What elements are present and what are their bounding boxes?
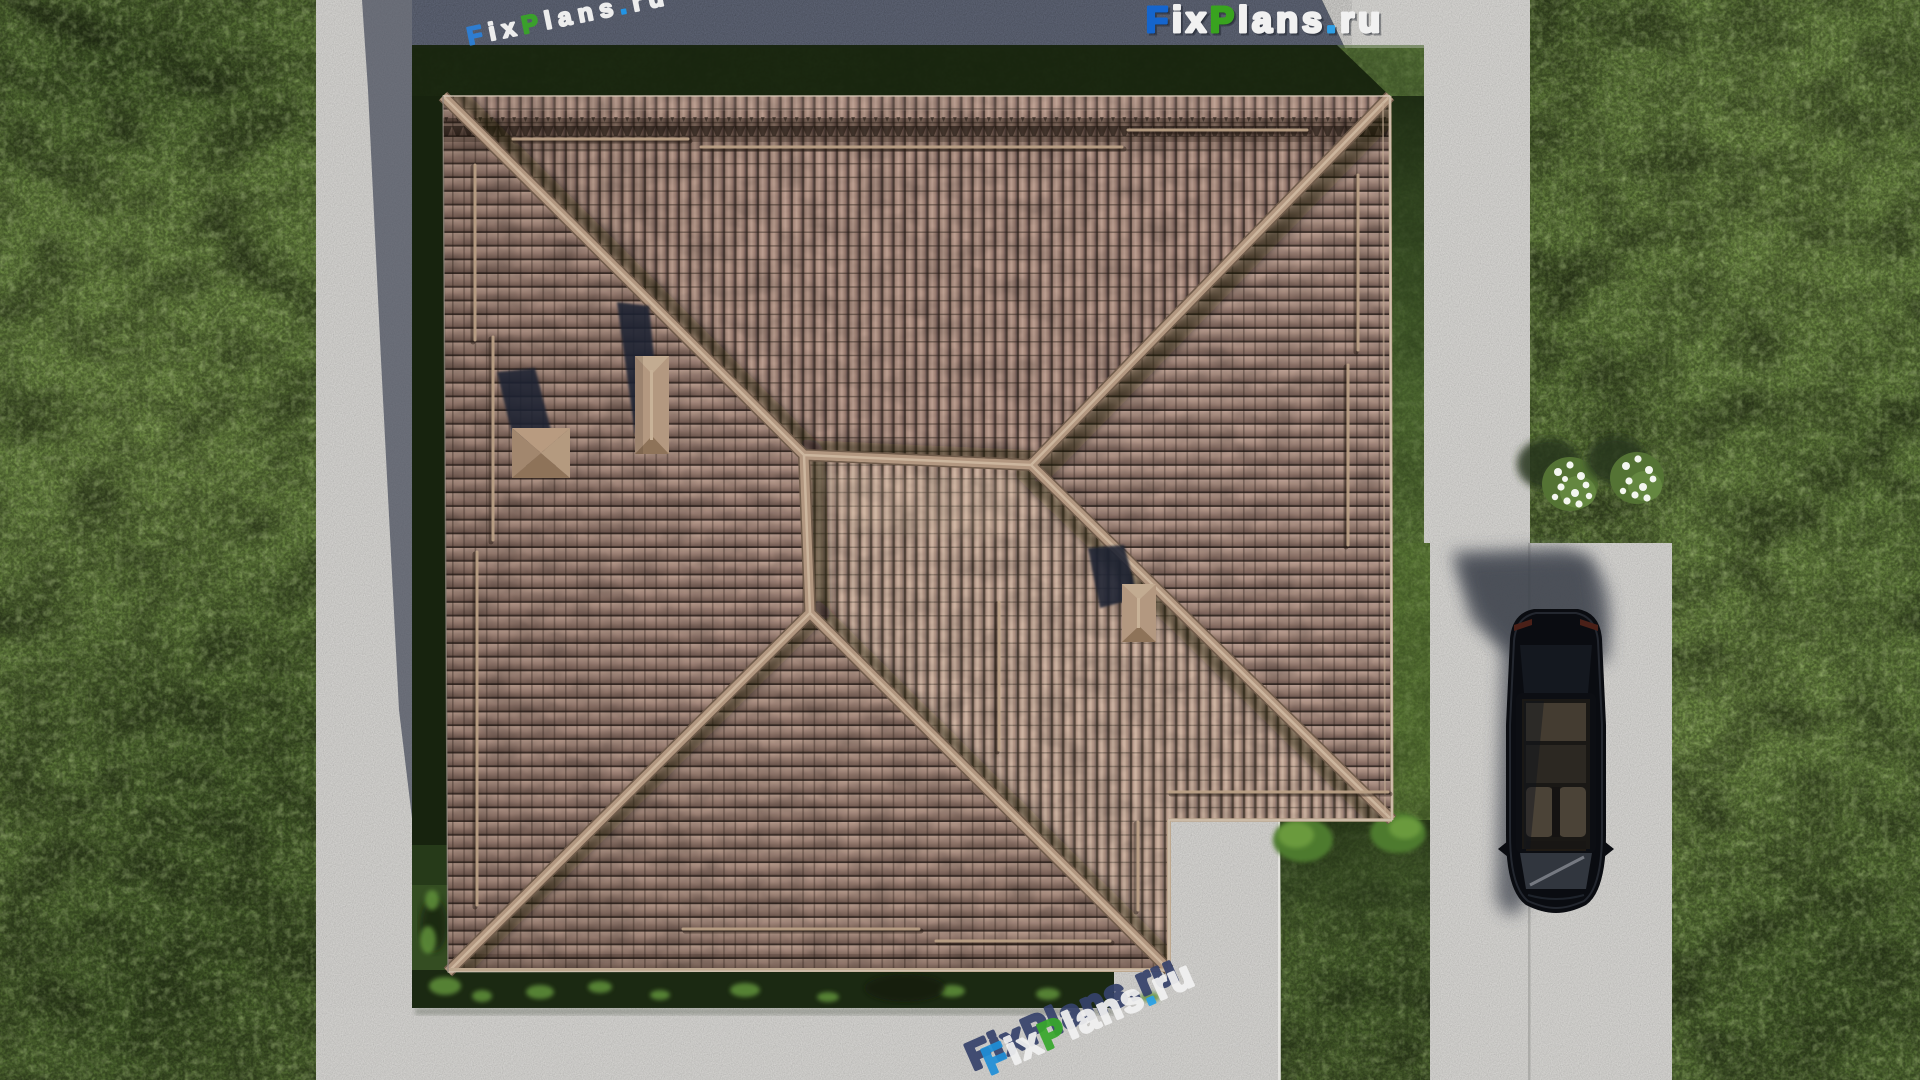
svg-text:FixPlans.ru: FixPlans.ru: [1146, 0, 1384, 40]
